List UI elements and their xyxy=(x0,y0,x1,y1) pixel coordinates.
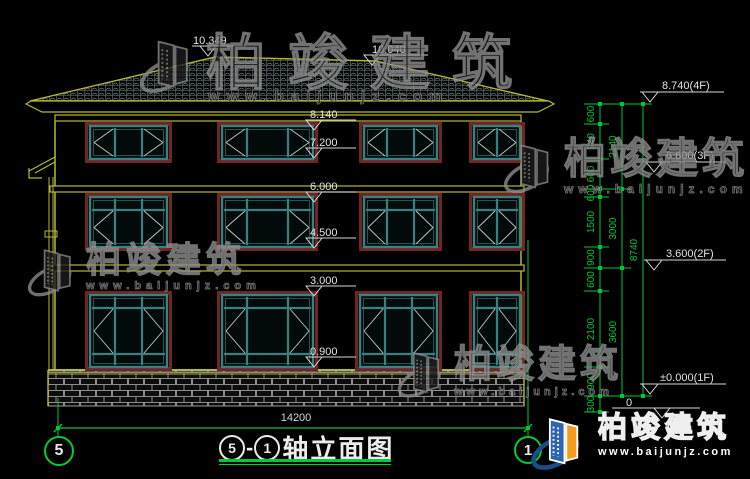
window-frame xyxy=(360,295,437,367)
window-side-trim xyxy=(469,291,472,371)
window-frame xyxy=(364,126,437,159)
window-side-trim xyxy=(439,291,442,371)
window-frame xyxy=(222,295,313,367)
level-value: 10.040 xyxy=(372,44,406,56)
level-triangle xyxy=(642,384,658,394)
window-frame xyxy=(222,197,313,247)
dim-value: 1500 xyxy=(586,210,597,233)
level-triangle xyxy=(642,92,658,102)
dim-value: 2140 xyxy=(608,135,619,158)
dim-tick-dot xyxy=(598,157,602,161)
level-triangle xyxy=(200,46,216,56)
window-side-trim xyxy=(522,291,525,371)
window-side-trim xyxy=(315,193,318,251)
dim-value: 300 xyxy=(586,395,597,412)
level-triangle xyxy=(646,162,662,172)
window-frame xyxy=(90,295,167,367)
dim-tick-dot xyxy=(620,187,624,191)
window-side-trim xyxy=(359,122,362,163)
window-side-trim xyxy=(169,122,172,163)
brand-logo: 柏竣建筑 www.baijunjz.com xyxy=(528,412,733,476)
window-side-trim xyxy=(469,122,472,163)
window-side-trim xyxy=(217,193,220,251)
dim-value: 2100 xyxy=(586,317,597,340)
level-value: 3.600(2F) xyxy=(666,248,714,260)
window-side-trim xyxy=(522,193,525,251)
dim-value: 8740 xyxy=(629,238,640,261)
window-side-trim xyxy=(169,291,172,371)
level-value: ±0.000(1F) xyxy=(660,372,714,384)
window-side-trim xyxy=(355,291,358,371)
window-frame xyxy=(364,197,437,247)
window-side-trim xyxy=(217,291,220,371)
dim-value: 3600 xyxy=(608,320,619,343)
window-frame xyxy=(222,126,313,159)
window-side-trim xyxy=(522,122,525,163)
dim-value: 600 xyxy=(586,271,597,288)
grid-bubble-5: 5 xyxy=(44,436,74,466)
dim-tick-dot xyxy=(620,266,624,270)
title-dash: - xyxy=(246,435,253,461)
level-value: 4.500 xyxy=(310,227,338,239)
level-value: 6.600(3F) xyxy=(666,150,714,162)
window-side-trim xyxy=(169,193,172,251)
level-value: 10.349 xyxy=(193,35,227,47)
window-side-trim xyxy=(217,122,220,163)
window-side-trim xyxy=(359,193,362,251)
dim-tick-dot xyxy=(598,289,602,293)
window-side-trim xyxy=(439,193,442,251)
level-value: 8.140 xyxy=(310,109,338,121)
level-value: 0.900 xyxy=(310,346,338,358)
dim-value: 900 xyxy=(586,373,597,390)
dim-value: 600 xyxy=(586,105,597,122)
dim-value: 600 xyxy=(586,165,597,182)
dim-tick-dot xyxy=(598,122,602,126)
title-axis-from: 5 xyxy=(219,435,245,461)
title-underline-thick xyxy=(219,459,391,462)
level-value: 3.000 xyxy=(310,275,338,287)
dim-tick-dot xyxy=(598,365,602,369)
dim-tick-dot xyxy=(598,195,602,199)
window-side-trim xyxy=(439,122,442,163)
window-frame xyxy=(90,126,167,159)
dim-tick-dot xyxy=(641,102,645,106)
dim-value: 940 xyxy=(586,133,597,150)
dim-value: 600 xyxy=(586,184,597,201)
dim-value: 3000 xyxy=(608,217,619,240)
level-value: 8.740(4F) xyxy=(662,80,710,92)
level-triangle xyxy=(646,260,662,270)
title-axis-to: 1 xyxy=(254,435,280,461)
brand-url: www.baijunjz.com xyxy=(598,446,733,458)
window-frame xyxy=(90,197,167,247)
level-value: 7.200 xyxy=(310,137,338,149)
dim-tick-dot xyxy=(598,245,602,249)
title-underline-thin xyxy=(219,464,391,465)
dim-value: 900 xyxy=(586,249,597,266)
level-value: 0 xyxy=(626,397,632,409)
overall-width-dimension: 14200 xyxy=(268,412,324,424)
level-value: 6.000 xyxy=(310,181,338,193)
cad-elevation-drawing: 6009406006001500900600210090030021403000… xyxy=(0,0,750,479)
window-side-trim xyxy=(85,122,88,163)
brand-name: 柏竣建筑 xyxy=(598,412,733,445)
dim-tick-dot xyxy=(641,394,645,398)
level-triangle xyxy=(364,55,380,65)
window-side-trim xyxy=(469,193,472,251)
window-side-trim xyxy=(315,291,318,371)
dimensions-and-windows: 6009406006001500900600210090030021403000… xyxy=(0,0,750,479)
window-side-trim xyxy=(85,193,88,251)
brand-logo-icon xyxy=(528,412,590,476)
window-side-trim xyxy=(85,291,88,371)
